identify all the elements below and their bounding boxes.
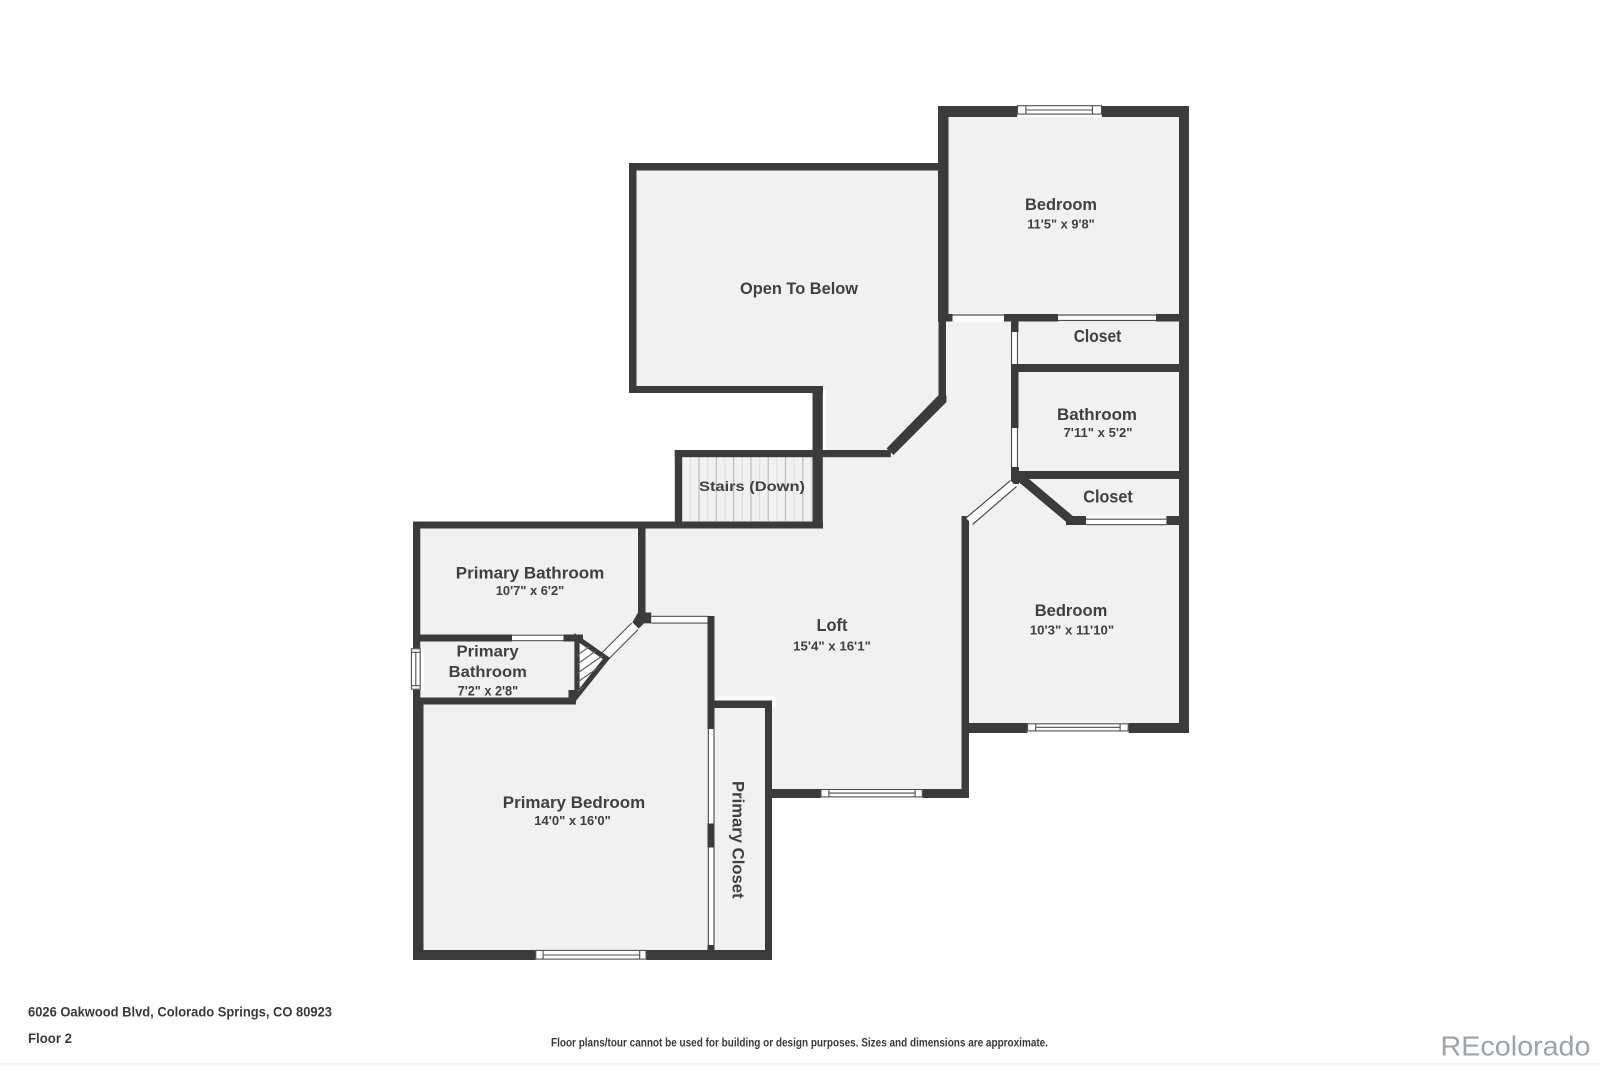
svg-text:14'0" x 16'0": 14'0" x 16'0" — [534, 813, 611, 828]
svg-text:REcolorado: REcolorado — [1441, 1031, 1591, 1062]
svg-text:Primary: Primary — [457, 643, 519, 660]
svg-text:Open To Below: Open To Below — [740, 279, 859, 298]
svg-text:Primary Bedroom: Primary Bedroom — [503, 793, 645, 812]
svg-text:10'7" x 6'2": 10'7" x 6'2" — [496, 583, 565, 598]
svg-text:7'11" x 5'2": 7'11" x 5'2" — [1064, 425, 1133, 440]
svg-text:11'5" x 9'8": 11'5" x 9'8" — [1027, 217, 1095, 232]
svg-text:Closet: Closet — [1074, 326, 1122, 346]
svg-text:Bedroom: Bedroom — [1025, 195, 1097, 214]
svg-text:15'4" x 16'1": 15'4" x 16'1" — [793, 639, 871, 654]
svg-text:Loft: Loft — [817, 615, 848, 635]
svg-text:Bedroom: Bedroom — [1035, 601, 1108, 620]
svg-text:Bathroom: Bathroom — [449, 664, 527, 681]
svg-text:Primary Bathroom: Primary Bathroom — [456, 564, 605, 583]
svg-text:Floor plans/tour cannot be use: Floor plans/tour cannot be used for buil… — [551, 1038, 1048, 1050]
svg-text:Primary Closet: Primary Closet — [729, 781, 747, 899]
svg-text:6026 Oakwood Blvd, Colorado Sp: 6026 Oakwood Blvd, Colorado Springs, CO … — [28, 1005, 332, 1020]
svg-text:7'2" x 2'8": 7'2" x 2'8" — [458, 683, 519, 699]
svg-text:Closet: Closet — [1083, 487, 1133, 507]
svg-text:Bathroom: Bathroom — [1057, 405, 1137, 424]
svg-text:10'3" x 11'10": 10'3" x 11'10" — [1030, 623, 1114, 638]
svg-text:Floor 2: Floor 2 — [28, 1031, 72, 1046]
svg-text:Stairs (Down): Stairs (Down) — [699, 478, 805, 494]
